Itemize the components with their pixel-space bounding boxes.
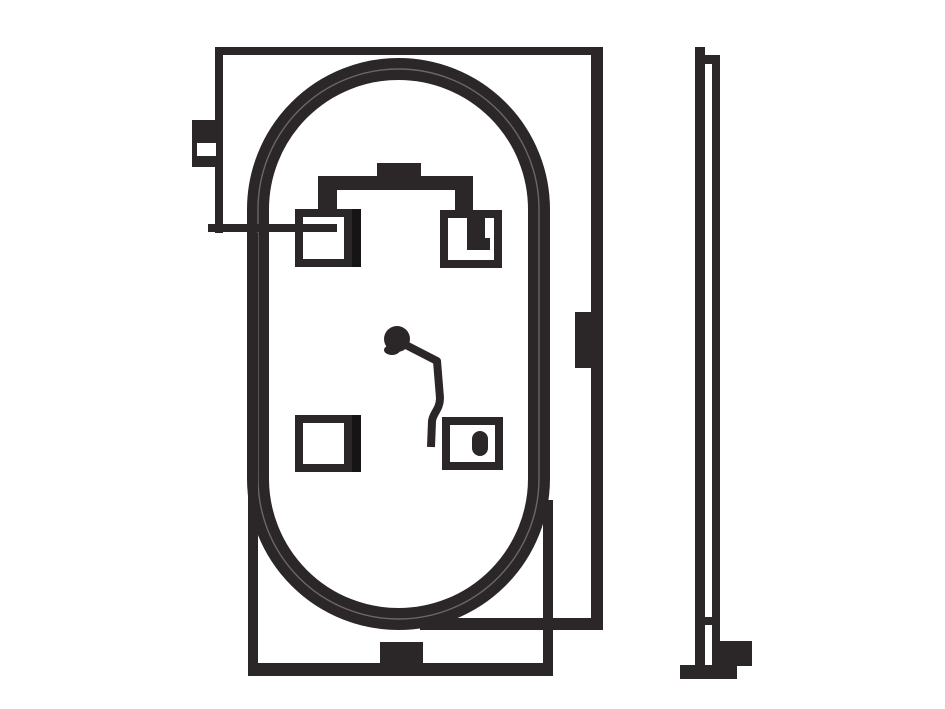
- side-left-line: [695, 47, 705, 665]
- back-right-edge: [543, 500, 553, 676]
- left-mount-tab-slot: [197, 143, 216, 156]
- bracket-bar: [318, 176, 473, 190]
- drawing-canvas: [0, 0, 945, 709]
- square-top-right-mark-b: [467, 238, 490, 250]
- square-bottom-right-mark: [472, 431, 488, 456]
- square-bottom-left: [299, 419, 348, 468]
- front-bottom-right-edge: [420, 618, 603, 630]
- reference-lead-path: [402, 343, 440, 447]
- left-lead-line: [208, 224, 337, 232]
- front-right-edge: [591, 47, 603, 630]
- side-right-line: [712, 63, 720, 665]
- reference-blob-tail: [384, 345, 400, 355]
- square-top-left-strip: [352, 209, 361, 267]
- right-inner-tab: [575, 312, 591, 368]
- bracket-top-bump: [377, 163, 421, 176]
- side-foot: [718, 641, 752, 666]
- back-bottom-edge: [248, 663, 553, 676]
- square-top-left: [299, 213, 348, 263]
- bracket-left-drop: [318, 190, 337, 212]
- back-left-edge: [248, 233, 258, 676]
- side-base: [680, 665, 737, 679]
- front-view: [192, 47, 603, 676]
- side-view: [680, 47, 752, 679]
- technical-drawing-svg: [0, 0, 945, 709]
- side-top-connector: [695, 55, 720, 64]
- bottom-center-bump: [380, 642, 423, 663]
- side-crossbar: [695, 617, 718, 625]
- square-bottom-left-strip: [352, 415, 361, 472]
- front-top-edge: [215, 47, 603, 55]
